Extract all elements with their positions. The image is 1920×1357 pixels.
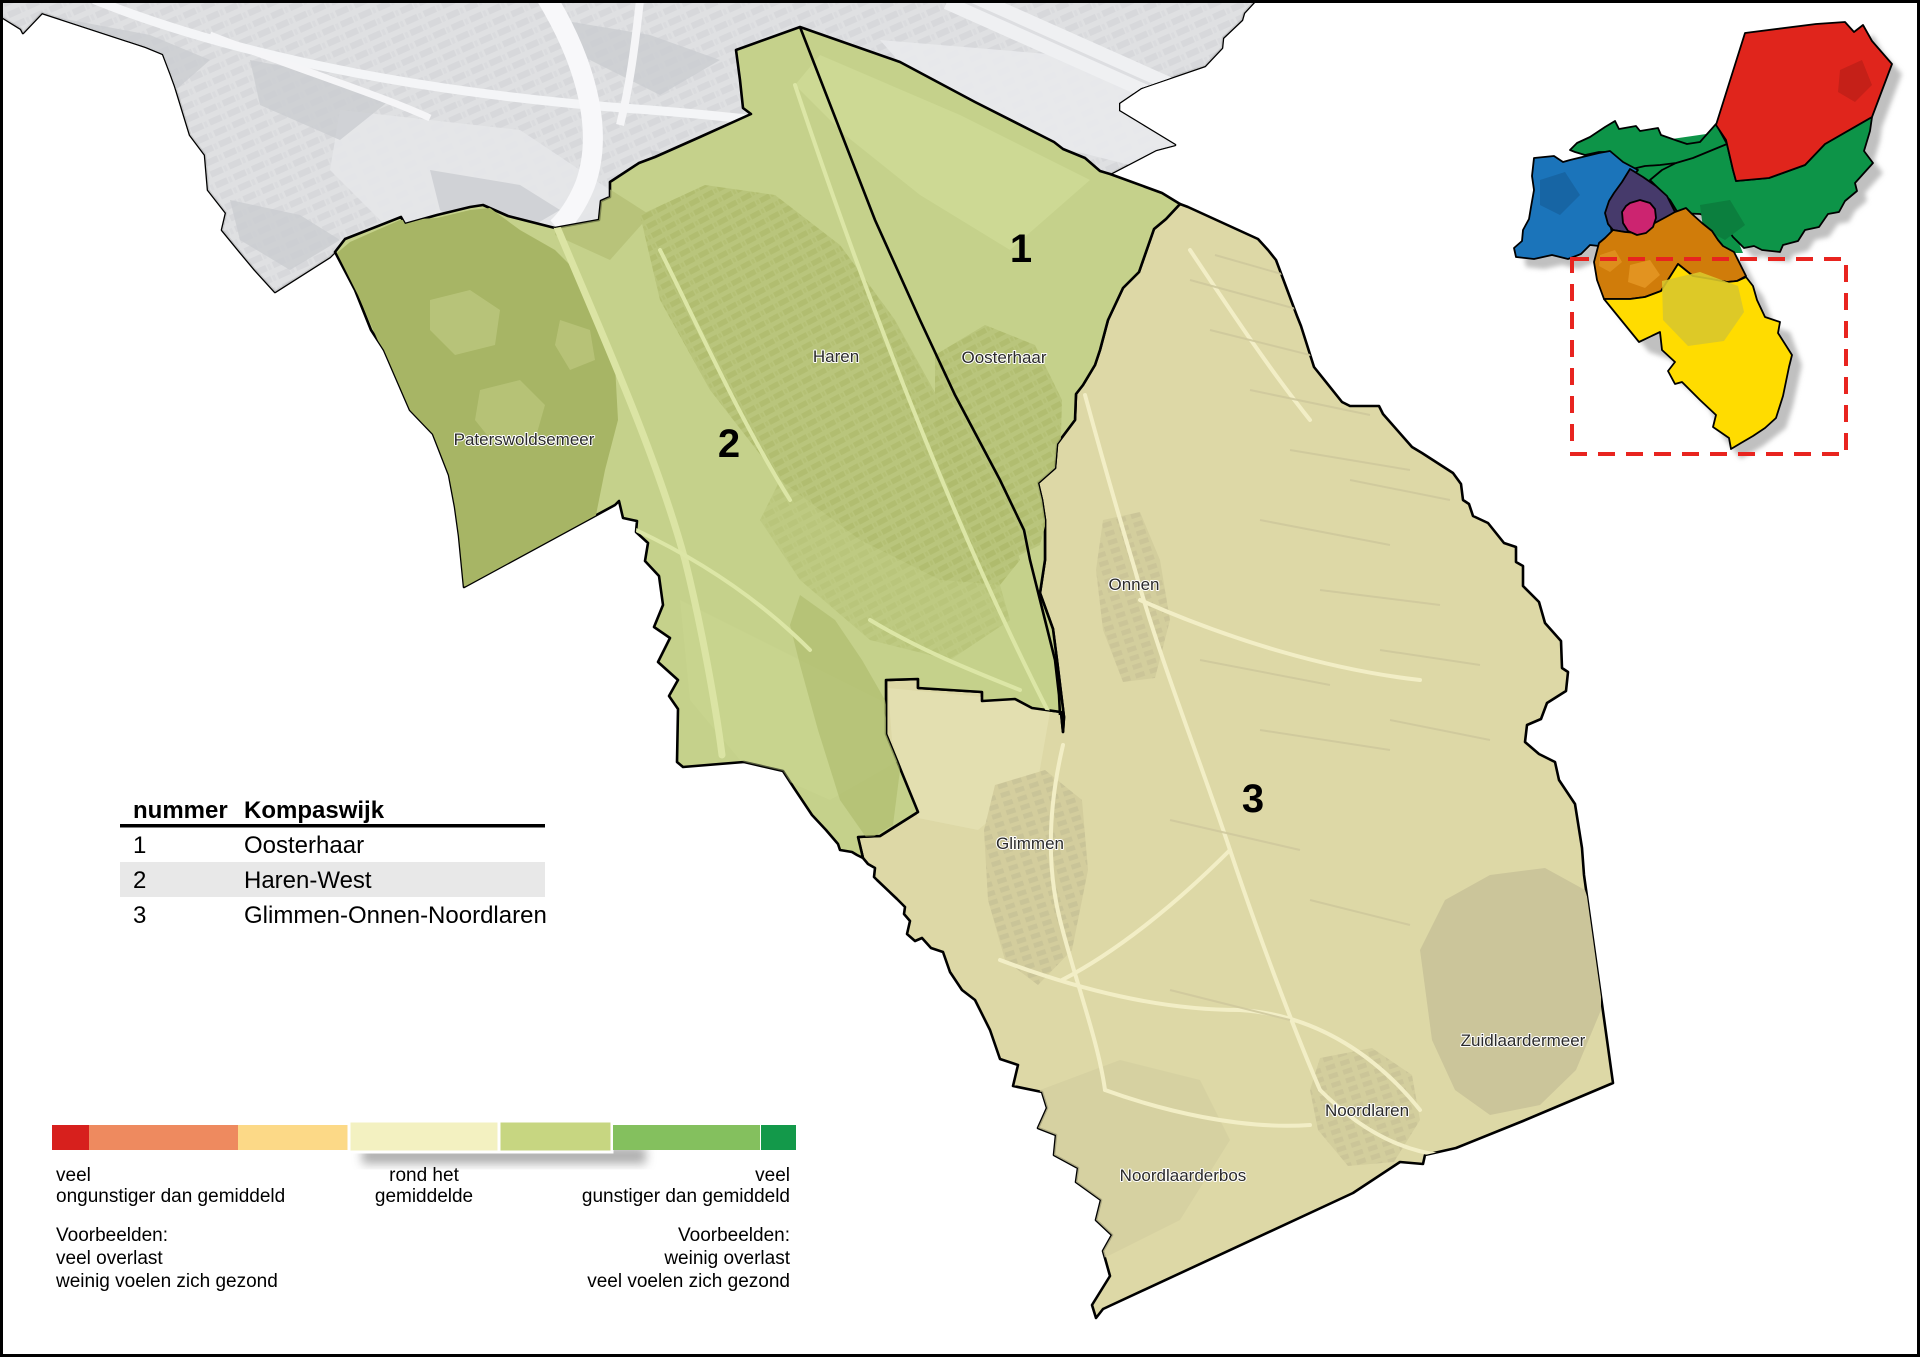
svg-text:Voorbeelden:: Voorbeelden: — [56, 1225, 168, 1246]
svg-text:Noordlaren: Noordlaren — [1325, 1101, 1409, 1120]
svg-text:1: 1 — [1010, 227, 1032, 271]
svg-text:1: 1 — [133, 832, 146, 859]
svg-text:gemiddelde: gemiddelde — [375, 1186, 473, 1207]
svg-text:nummer: nummer — [133, 797, 228, 824]
svg-text:veel voelen zich gezond: veel voelen zich gezond — [587, 1271, 790, 1292]
svg-text:Oosterhaar: Oosterhaar — [961, 348, 1046, 367]
svg-text:veel: veel — [56, 1165, 91, 1186]
svg-text:Haren-West: Haren-West — [244, 867, 372, 894]
svg-text:gunstiger dan gemiddeld: gunstiger dan gemiddeld — [582, 1186, 790, 1207]
svg-text:Glimmen-Onnen-Noordlaren: Glimmen-Onnen-Noordlaren — [244, 902, 547, 929]
svg-text:weinig overlast: weinig overlast — [663, 1248, 790, 1269]
svg-text:Voorbeelden:: Voorbeelden: — [678, 1225, 790, 1246]
svg-text:Noordlaarderbos: Noordlaarderbos — [1120, 1166, 1247, 1185]
svg-text:ongunstiger dan gemiddeld: ongunstiger dan gemiddeld — [56, 1186, 285, 1207]
svg-text:Glimmen: Glimmen — [996, 834, 1064, 853]
svg-text:Paterswoldsemeer: Paterswoldsemeer — [454, 430, 595, 449]
svg-text:Onnen: Onnen — [1108, 575, 1159, 594]
svg-text:2: 2 — [133, 867, 146, 894]
svg-text:2: 2 — [718, 422, 740, 466]
svg-text:veel: veel — [755, 1165, 790, 1186]
svg-text:Kompaswijk: Kompaswijk — [244, 797, 385, 824]
svg-text:Haren: Haren — [813, 347, 859, 366]
svg-text:Zuidlaardermeer: Zuidlaardermeer — [1461, 1031, 1586, 1050]
svg-text:3: 3 — [133, 902, 146, 929]
svg-text:veel overlast: veel overlast — [56, 1248, 163, 1269]
svg-text:rond het: rond het — [389, 1165, 459, 1186]
svg-text:3: 3 — [1242, 777, 1264, 821]
svg-text:Oosterhaar: Oosterhaar — [244, 832, 364, 859]
svg-text:weinig voelen zich gezond: weinig voelen zich gezond — [55, 1271, 278, 1292]
